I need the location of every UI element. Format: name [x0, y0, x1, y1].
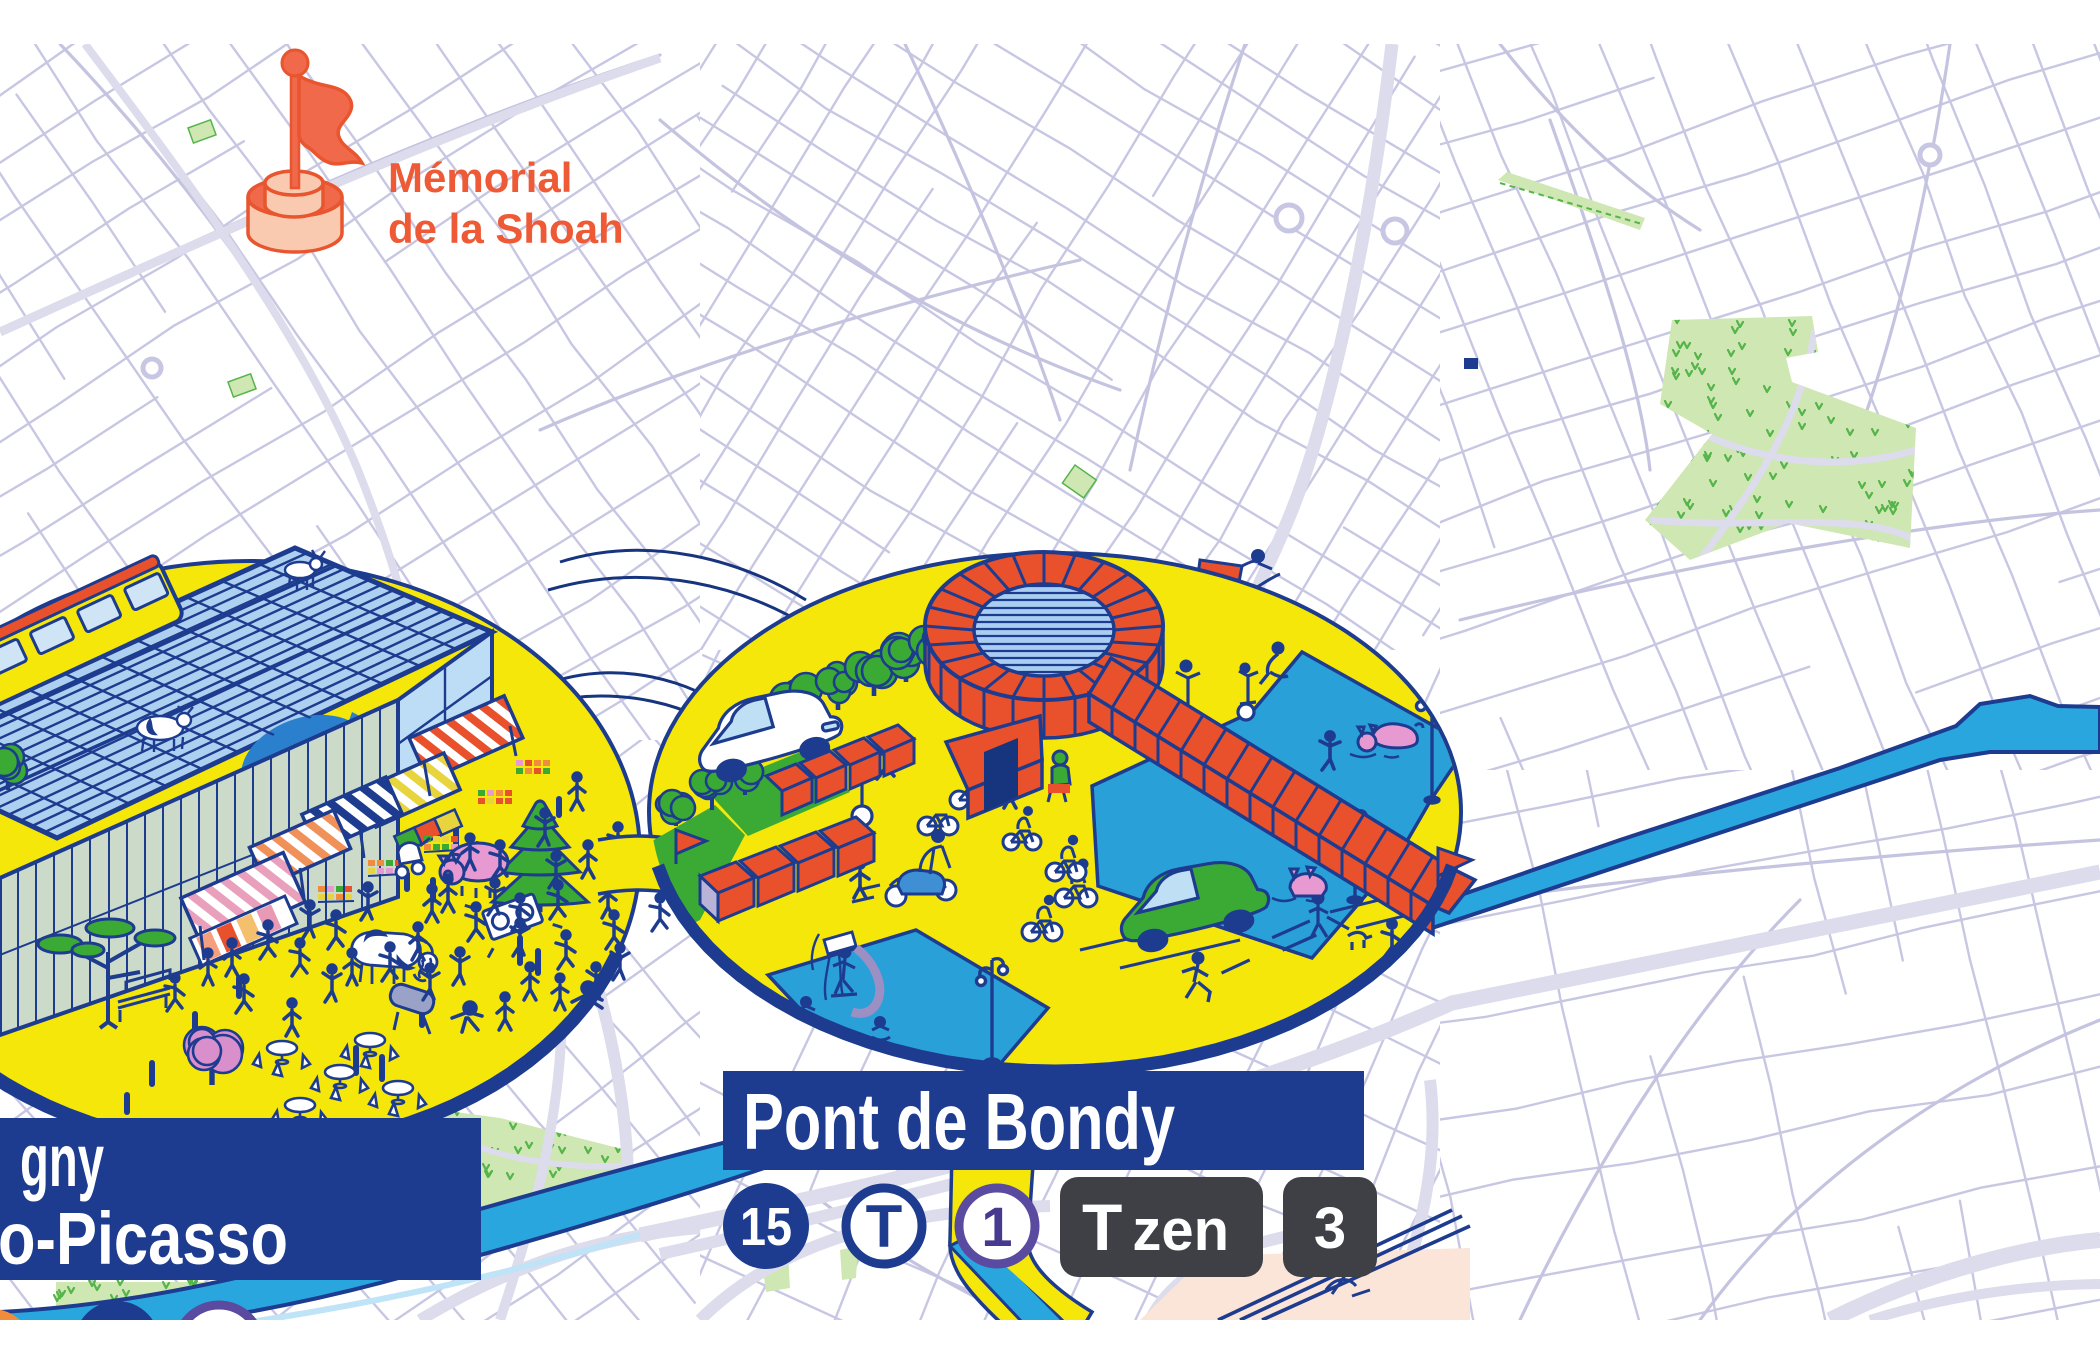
svg-text:T: T	[866, 1193, 903, 1260]
svg-text:o-Picasso: o-Picasso	[0, 1197, 288, 1280]
svg-text:Tzen: Tzen	[1082, 1190, 1229, 1264]
svg-text:Pont de Bondy: Pont de Bondy	[743, 1077, 1175, 1166]
svg-text:15: 15	[740, 1197, 792, 1257]
svg-text:Mémorial: Mémorial	[388, 154, 572, 201]
svg-text:3: 3	[1314, 1196, 1346, 1261]
svg-text:1: 1	[981, 1195, 1012, 1258]
svg-text:gny: gny	[20, 1119, 104, 1202]
svg-text:de la Shoah: de la Shoah	[388, 205, 624, 252]
